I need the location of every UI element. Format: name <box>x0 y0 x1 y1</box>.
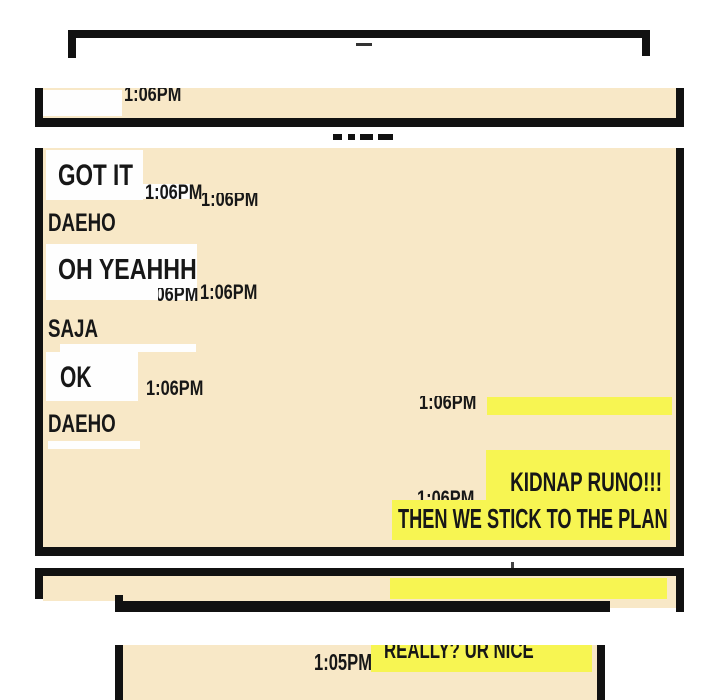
panel-background <box>605 601 676 608</box>
timestamp: 1:06PM <box>145 181 202 204</box>
chat-bubble-right: THEN WE STICK TO THE PLAN <box>392 500 670 540</box>
message-text: REALLY? UR NICE <box>384 645 534 661</box>
chat-bubble-right <box>390 578 667 599</box>
timestamp-ghost: 1:06PM <box>419 396 479 413</box>
timestamp-text: 1:06PM <box>124 88 181 105</box>
timestamp-text: 1:06PM <box>158 288 198 305</box>
timestamp: 1:06PM <box>124 88 186 105</box>
sender-label: DAEHO <box>48 411 116 439</box>
frame-left-border <box>68 30 76 58</box>
cut-text-fragment <box>378 134 393 140</box>
timestamp: 1:06PM <box>146 377 203 400</box>
frame-right-border <box>642 30 650 56</box>
comic-page: 1:06PM GOT IT 1:06PM 1:06PM DAEHO OH YEA… <box>0 0 720 700</box>
chat-bubble-left: OK <box>46 352 138 401</box>
message-text: OH YEAHHH <box>58 255 197 287</box>
chat-strip-panel: 1:06PM <box>35 88 684 127</box>
timestamp-ghost: 1:06PM <box>201 193 259 209</box>
frame-right-border <box>597 645 605 700</box>
cut-text-fragment <box>511 562 514 568</box>
frame-top-border <box>35 568 684 576</box>
frame-top-border <box>68 30 650 38</box>
timestamp-ghost: 1:06PM <box>158 288 202 305</box>
timestamp-text: 1:06PM <box>419 396 476 413</box>
chat-bubble-left: GOT IT <box>46 150 143 200</box>
cut-text-fragment <box>348 134 355 140</box>
bubble-fragment <box>48 441 140 449</box>
frame-inset-bottom <box>115 601 610 612</box>
frame-right-border <box>676 568 684 612</box>
cut-text-fragment <box>360 134 373 140</box>
chat-bubble-left <box>43 90 122 116</box>
message-text: GOT IT <box>58 159 133 192</box>
timestamp: 1:05PM <box>314 650 372 675</box>
main-chat-panel: GOT IT 1:06PM 1:06PM DAEHO OH YEAHHH 1:0… <box>35 148 684 556</box>
chat-bubble-right <box>487 397 672 415</box>
chat-bubble-right: KIDNAP RUNO!!! <box>486 450 670 502</box>
message-text: KIDNAP RUNO!!! <box>510 468 662 498</box>
message-text-clipped: REALLY? UR NICE <box>380 645 585 661</box>
cut-text-fragment <box>356 43 372 46</box>
message-text: THEN WE STICK TO THE PLAN <box>398 504 668 535</box>
cut-text-fragment <box>333 134 342 140</box>
sender-label: DAEHO <box>48 210 116 238</box>
bubble-fragment <box>60 344 196 352</box>
sender-label: SAJA <box>48 316 98 344</box>
frame-left-border <box>35 568 43 599</box>
timestamp-text: 1:06PM <box>201 193 258 209</box>
timestamp: 1:06PM <box>200 281 257 304</box>
frame-left-border <box>115 645 123 700</box>
message-text: OK <box>60 361 92 394</box>
